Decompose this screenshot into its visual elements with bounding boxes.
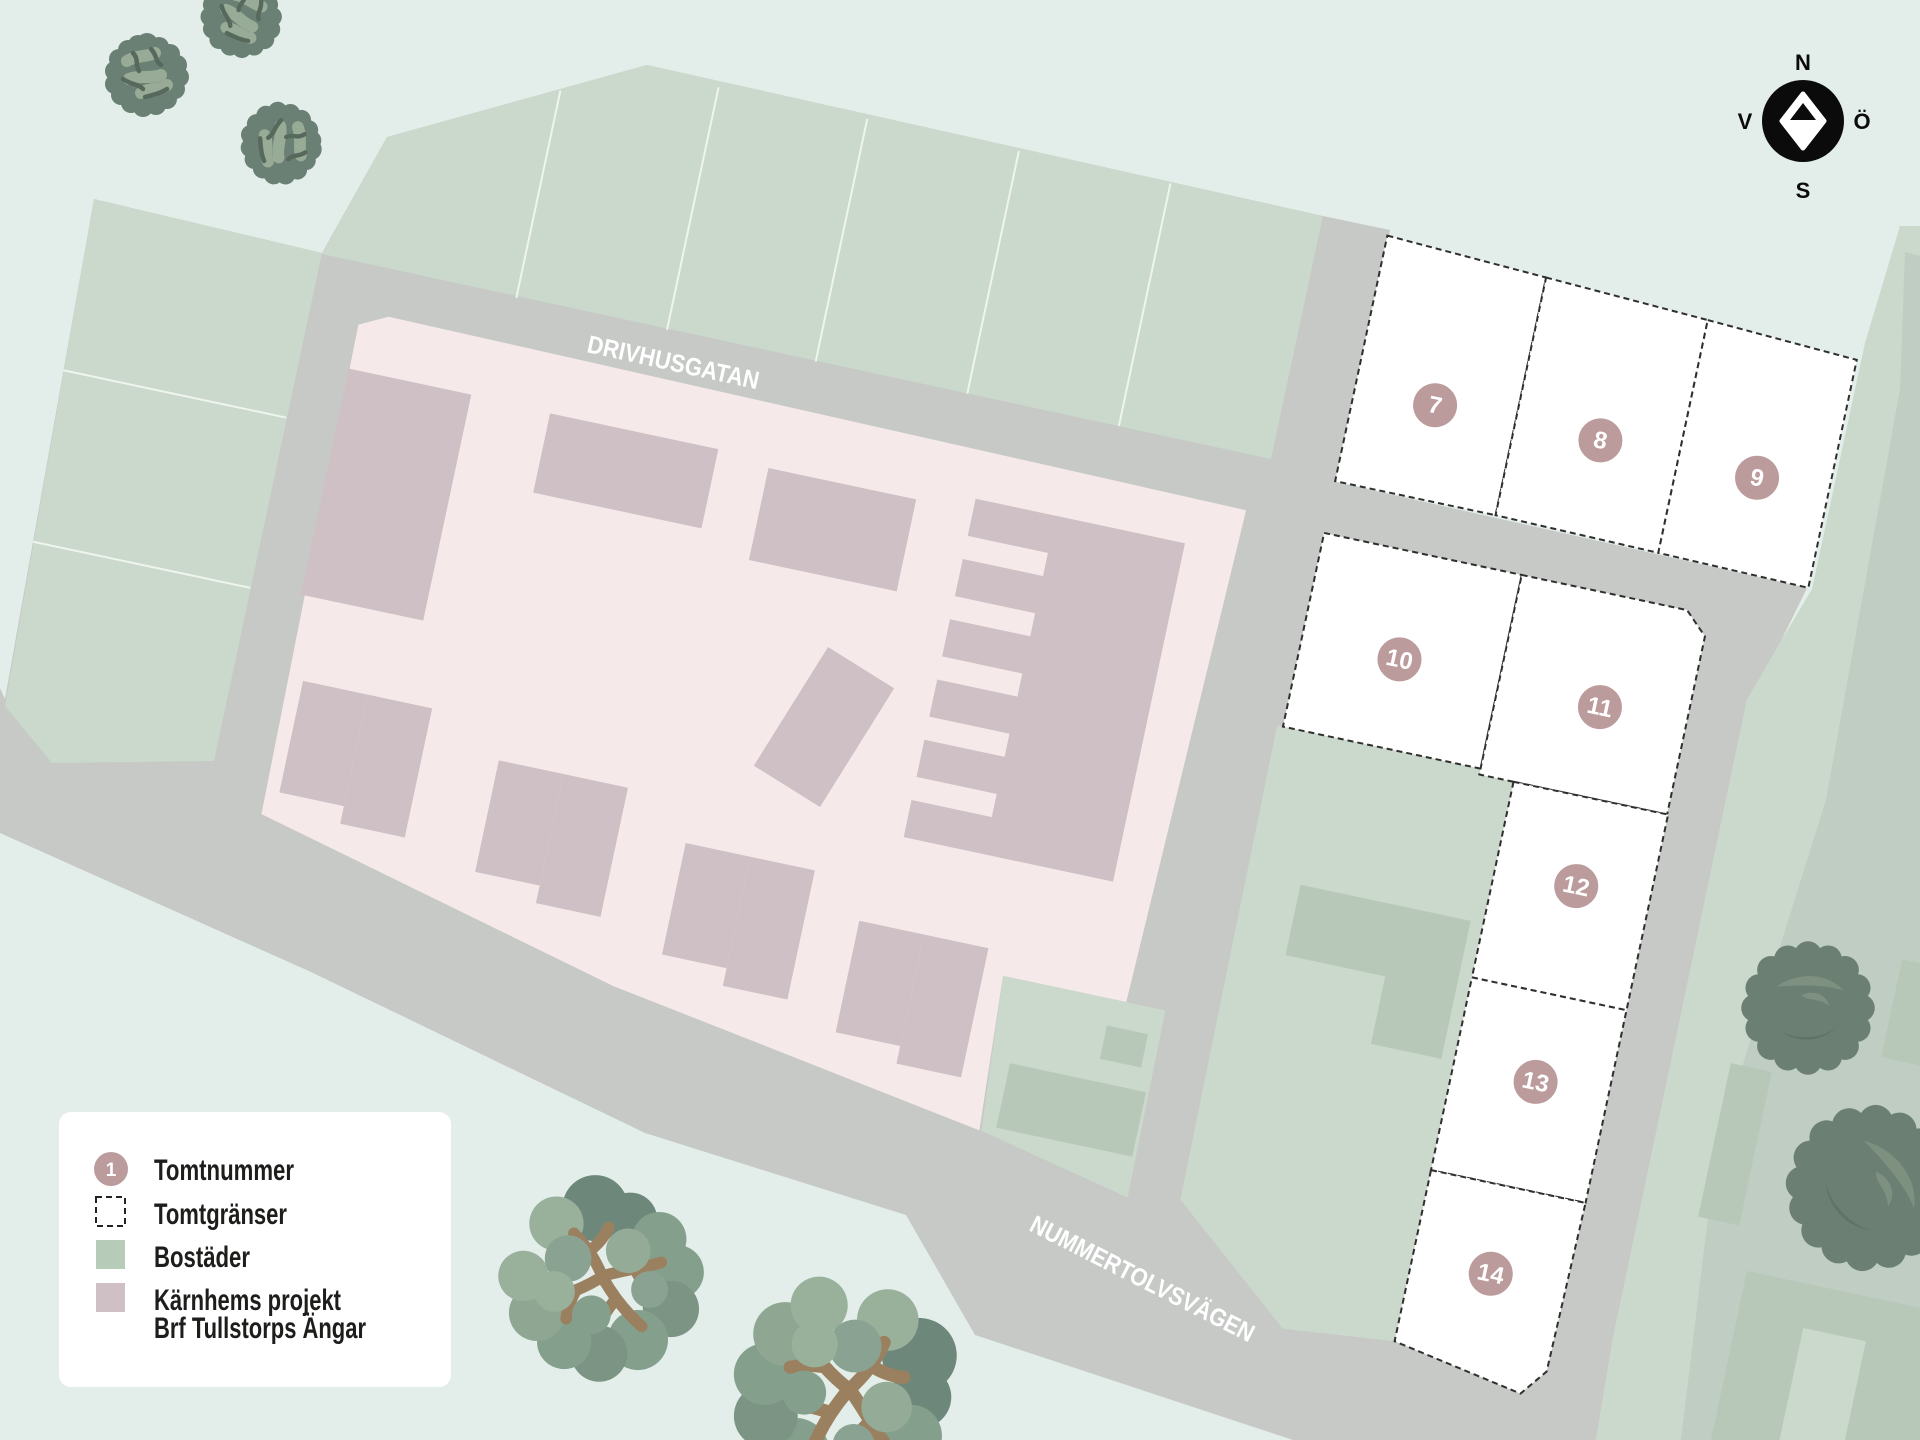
svg-text:10: 10 bbox=[1384, 644, 1416, 676]
svg-text:N: N bbox=[1795, 50, 1811, 75]
svg-text:1: 1 bbox=[106, 1160, 117, 1181]
svg-text:Tomtgränser: Tomtgränser bbox=[154, 1198, 287, 1231]
svg-text:13: 13 bbox=[1520, 1066, 1552, 1098]
svg-text:Ö: Ö bbox=[1853, 109, 1870, 134]
svg-text:Bostäder: Bostäder bbox=[154, 1241, 250, 1274]
svg-text:S: S bbox=[1796, 178, 1811, 203]
svg-text:V: V bbox=[1738, 109, 1753, 134]
svg-text:Tomtnummer: Tomtnummer bbox=[154, 1154, 294, 1187]
svg-text:Brf Tullstorps Ängar: Brf Tullstorps Ängar bbox=[154, 1312, 366, 1345]
svg-text:12: 12 bbox=[1560, 871, 1592, 903]
